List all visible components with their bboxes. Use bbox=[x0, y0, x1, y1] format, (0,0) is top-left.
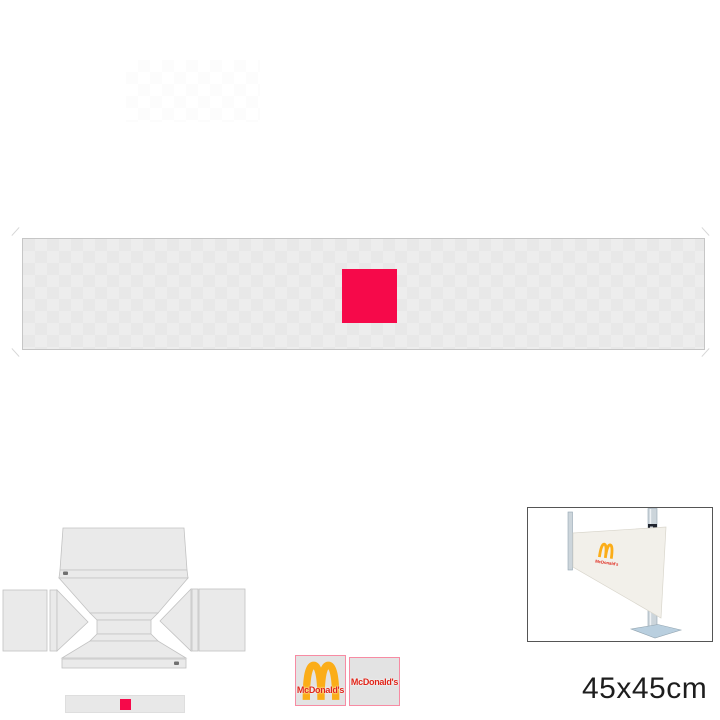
tent-bottom-valance bbox=[62, 659, 186, 668]
tent-roof-top-bevel bbox=[90, 613, 158, 620]
mini-logo-marker-top bbox=[63, 572, 68, 576]
product-photo-thumbnail[interactable]: McDonald's bbox=[527, 507, 713, 642]
mini-banner-thumbnail[interactable] bbox=[65, 695, 185, 713]
mini-logo-marker-bottom bbox=[174, 662, 179, 666]
mini-banner-logo-square bbox=[120, 699, 131, 710]
swatch-mcdonalds-wordmark[interactable]: McDonald's bbox=[349, 657, 400, 706]
pole-foot-plate bbox=[631, 625, 681, 639]
half-wall-banner-cloth bbox=[573, 527, 666, 618]
tent-top-valance bbox=[60, 528, 187, 570]
swatch-arches-label: McDonald's bbox=[296, 685, 345, 695]
tent-top-valance-hem bbox=[59, 570, 188, 578]
tent-left-strip bbox=[50, 590, 57, 651]
tent-roof-top-flap bbox=[59, 578, 188, 613]
size-label: 45x45cm bbox=[582, 672, 707, 706]
tent-right-strip bbox=[192, 589, 198, 651]
tent-roof-bottom-bevel bbox=[90, 634, 158, 641]
crop-mark-bottom-left bbox=[11, 348, 19, 357]
tent-left-panel bbox=[3, 590, 47, 651]
customizer-stage: McDonald's McDonald's McDonald's 45x45cm bbox=[0, 0, 720, 720]
left-pole bbox=[568, 512, 573, 570]
crop-mark-top-right bbox=[701, 227, 709, 236]
half-wall-photo: McDonald's bbox=[528, 508, 712, 641]
faint-checker-grid bbox=[126, 60, 260, 122]
tent-roof-bottom-flap bbox=[62, 641, 186, 658]
swatch-wordmark-label: McDonald's bbox=[351, 677, 398, 687]
crop-mark-top-left bbox=[11, 227, 19, 236]
tent-roof-center bbox=[97, 620, 151, 634]
tent-right-panel bbox=[199, 589, 245, 651]
swatch-mcdonalds-arches[interactable]: McDonald's bbox=[295, 655, 346, 706]
mcdonalds-arches-icon bbox=[300, 660, 342, 702]
banner-logo-placeholder-square[interactable] bbox=[342, 269, 397, 323]
tent-template-thumbnail[interactable] bbox=[0, 520, 260, 675]
